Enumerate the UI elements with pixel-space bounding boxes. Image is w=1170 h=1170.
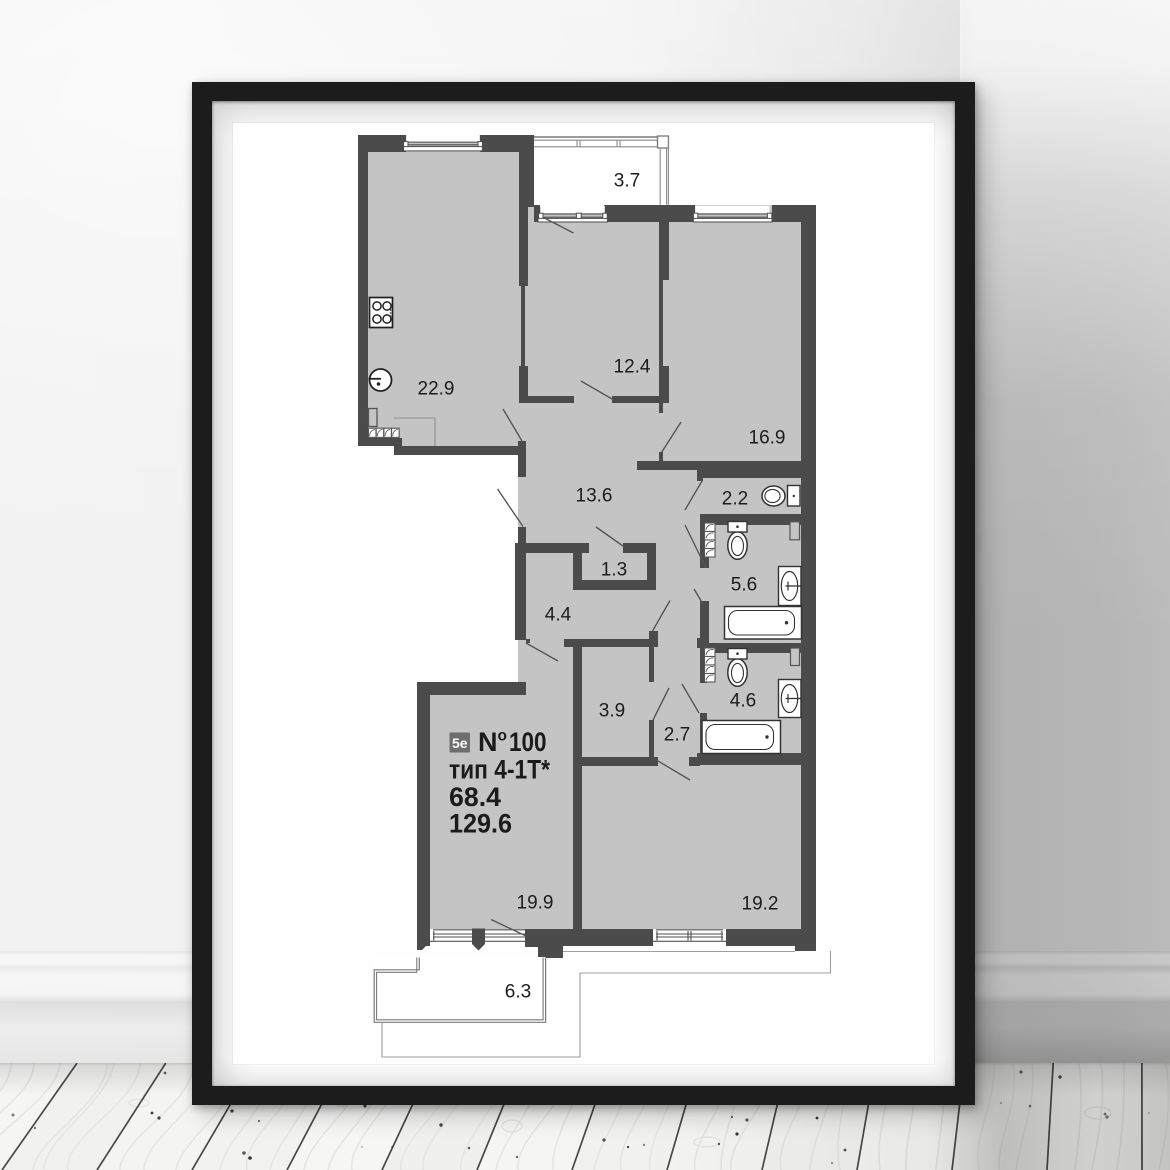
svg-text:1.3: 1.3 — [601, 560, 627, 581]
svg-text:22.9: 22.9 — [418, 379, 455, 400]
svg-text:100: 100 — [509, 727, 547, 757]
svg-text:5e: 5e — [452, 735, 468, 751]
svg-text:129.6: 129.6 — [449, 809, 512, 839]
svg-text:4.6: 4.6 — [730, 691, 756, 712]
svg-text:13.6: 13.6 — [576, 486, 613, 507]
svg-text:4.4: 4.4 — [545, 605, 572, 626]
svg-text:12.4: 12.4 — [614, 357, 651, 378]
svg-text:o: o — [498, 728, 507, 745]
svg-text:6.3: 6.3 — [505, 982, 531, 1003]
svg-text:16.9: 16.9 — [749, 428, 786, 449]
svg-text:2.7: 2.7 — [664, 725, 690, 746]
svg-text:5.6: 5.6 — [731, 575, 757, 596]
svg-text:19.9: 19.9 — [517, 893, 554, 914]
svg-text:68.4: 68.4 — [449, 782, 501, 812]
svg-text:3.7: 3.7 — [614, 171, 640, 192]
svg-text:тип 4-1Т*: тип 4-1Т* — [449, 755, 550, 785]
svg-text:19.2: 19.2 — [742, 894, 779, 915]
svg-text:N: N — [478, 727, 498, 757]
svg-text:2.2: 2.2 — [722, 489, 748, 510]
svg-text:3.9: 3.9 — [599, 701, 625, 722]
